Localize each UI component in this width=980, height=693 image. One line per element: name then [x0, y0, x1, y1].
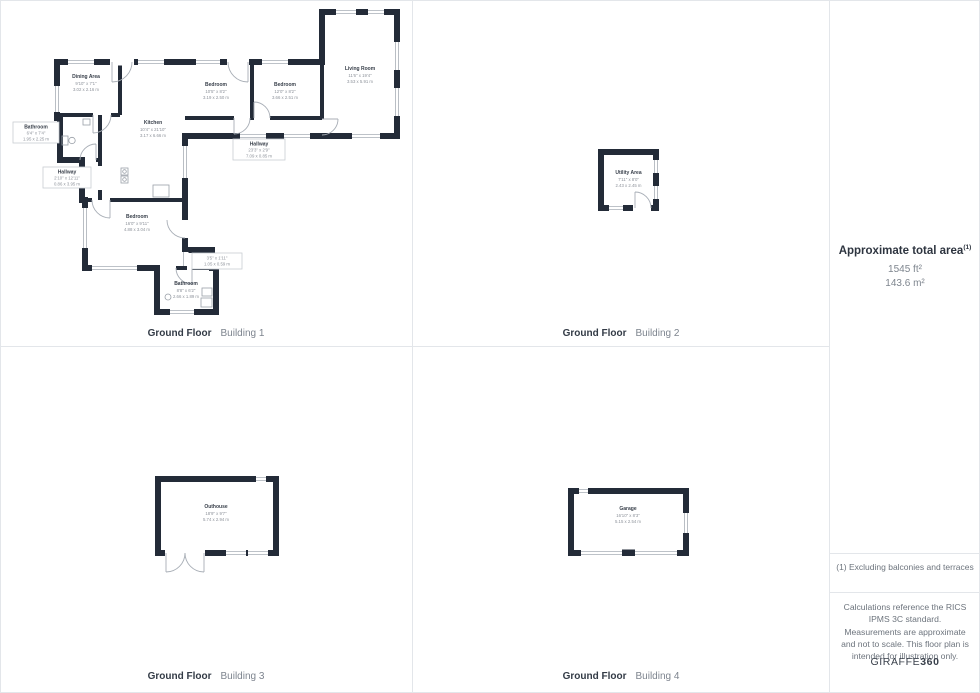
room-dim-metric: 2.66 x 1.89 m — [173, 294, 199, 299]
total-area-m: 143.6 m² — [830, 277, 980, 291]
floorplan-building-1: Dining Area 9'10" x 7'1" 3.02 x 2.16 m K… — [0, 0, 412, 346]
room-dim-imperial: 9'10" x 7'1" — [75, 81, 97, 86]
room-name: Kitchen — [144, 120, 162, 126]
doors — [165, 550, 205, 573]
room-name: Dining Area — [72, 74, 100, 80]
caption-building: Building 4 — [635, 671, 679, 682]
room-dim-imperial: 7'11" x 8'0" — [618, 177, 639, 182]
panel-building-1: Dining Area 9'10" x 7'1" 3.02 x 2.16 m K… — [0, 0, 412, 346]
summary-sidebar: Approximate total area(1) 1545 ft² 143.6… — [830, 0, 980, 693]
caption-building: Building 3 — [220, 671, 264, 682]
room-dim-metric: 2.43 x 2.45 m — [615, 183, 641, 188]
room-name: Bedroom — [274, 82, 297, 88]
doors — [581, 550, 677, 557]
room-label-hallway-left: Hallway 2'10" x 12'11" 0.86 x 3.95 m — [43, 167, 91, 188]
room-dim-imperial: 16'0" x 9'11" — [125, 221, 149, 226]
room-label-bedroom-1: Bedroom 10'5" x 8'2" 3.19 x 2.50 m — [203, 82, 229, 100]
room-dim-metric: 7.09 x 0.85 m — [246, 154, 272, 159]
room-name: Bedroom — [205, 82, 228, 88]
panel-building-2: Utility Area 7'11" x 8'0" 2.43 x 2.45 m … — [413, 0, 829, 346]
room-label-bathroom-left: Bathroom 6'4" x 7'4" 1.95 x 2.25 m — [13, 122, 59, 143]
room-name: Bathroom — [174, 281, 198, 287]
room-dim-metric: 1.05 x 0.59 m — [204, 262, 230, 267]
room-dim-metric: 4.88 x 3.04 m — [124, 227, 150, 232]
sidebar-divider-line — [829, 0, 830, 693]
room-dim-imperial: 18'9" x 9'7" — [205, 511, 227, 516]
room-name: Utility Area — [615, 170, 641, 176]
room-label-closet: 3'5" x 1'11" 1.05 x 0.59 m — [192, 253, 242, 269]
caption-building-3: Ground FloorBuilding 3 — [0, 671, 412, 682]
room-label-outhouse: Outhouse 18'9" x 9'7" 5.74 x 2.94 m — [203, 504, 229, 522]
disclaimer-text: Calculations reference the RICS IPMS 3C … — [840, 601, 970, 662]
row-divider — [0, 346, 829, 347]
room-dim-metric: 5.74 x 2.94 m — [203, 517, 229, 522]
caption-building-2: Ground FloorBuilding 2 — [413, 328, 829, 339]
sidebar-divider — [830, 592, 980, 593]
exterior-wall — [158, 479, 276, 553]
room-dim-metric: 3.17 x 6.66 m — [140, 133, 166, 138]
caption-floor: Ground Floor — [563, 671, 627, 682]
floorplan-building-3: Outhouse 18'9" x 9'7" 5.74 x 2.94 m — [0, 347, 412, 693]
room-dim-imperial: 23'3" x 2'9" — [248, 148, 270, 153]
room-label-dining-area: Dining Area 9'10" x 7'1" 3.02 x 2.16 m — [72, 74, 100, 92]
room-label-bedroom-2: Bedroom 12'0" x 8'2" 3.66 x 2.51 m — [272, 82, 298, 100]
room-dim-imperial: 3'5" x 1'11" — [207, 256, 228, 261]
room-dim-imperial: 16'10" x 8'3" — [616, 513, 640, 518]
caption-building: Building 1 — [220, 328, 264, 339]
footnote-text: (1) Excluding balconies and terraces — [830, 562, 980, 572]
room-name: Living Room — [345, 66, 376, 72]
total-area-ft: 1545 ft² — [830, 263, 980, 277]
room-dim-imperial: 8'8" x 6'2" — [177, 288, 196, 293]
room-label-utility-area: Utility Area 7'11" x 8'0" 2.43 x 2.45 m — [615, 170, 642, 188]
room-dim-imperial: 10'5" x 8'2" — [205, 89, 227, 94]
panel-building-4: Garage 16'10" x 8'3" 5.15 x 2.54 m Groun… — [413, 347, 829, 693]
room-dim-metric: 3.19 x 2.50 m — [203, 95, 229, 100]
total-area-block: Approximate total area(1) 1545 ft² 143.6… — [830, 244, 980, 291]
room-name: Outhouse — [204, 504, 228, 510]
room-label-bedroom-3: Bedroom 16'0" x 9'11" 4.88 x 3.04 m — [124, 214, 150, 232]
room-dim-metric: 3.53 x 5.91 m — [347, 79, 373, 84]
room-dim-metric: 3.66 x 2.51 m — [272, 95, 298, 100]
caption-building-1: Ground FloorBuilding 1 — [0, 328, 412, 339]
total-area-footnote-marker: (1) — [963, 244, 971, 251]
caption-building-4: Ground FloorBuilding 4 — [413, 671, 829, 682]
giraffe360-logo: GIRAFFE360 — [830, 656, 980, 668]
room-dim-imperial: 11'6" x 19'4" — [348, 73, 372, 78]
brand-regular: GIRAFFE — [870, 656, 920, 668]
caption-building: Building 2 — [635, 328, 679, 339]
floorplan-building-2: Utility Area 7'11" x 8'0" 2.43 x 2.45 m — [413, 0, 829, 346]
room-dim-imperial: 12'0" x 8'2" — [274, 89, 296, 94]
room-dim-metric: 0.86 x 3.95 m — [54, 182, 80, 187]
floorplan-building-4: Garage 16'10" x 8'3" 5.15 x 2.54 m — [413, 347, 829, 693]
room-dim-imperial: 10'4" x 21'10" — [140, 127, 166, 132]
room-name: Garage — [619, 506, 636, 512]
room-dim-imperial: 2'10" x 12'11" — [54, 176, 80, 181]
total-area-title: Approximate total area(1) — [830, 244, 980, 257]
room-label-living-room: Living Room 11'6" x 19'4" 3.53 x 5.91 m — [345, 66, 376, 84]
room-label-hallway-top: Hallway 23'3" x 2'9" 7.09 x 0.85 m — [233, 139, 285, 160]
caption-floor: Ground Floor — [563, 328, 627, 339]
room-dim-metric: 3.02 x 2.16 m — [73, 87, 99, 92]
total-area-title-text: Approximate total area — [839, 245, 964, 257]
sidebar-divider — [830, 553, 980, 554]
room-dim-imperial: 6'4" x 7'4" — [27, 131, 46, 136]
room-dim-metric: 1.95 x 2.25 m — [23, 137, 49, 142]
room-name: Bedroom — [126, 214, 149, 220]
floorplan-page: Dining Area 9'10" x 7'1" 3.02 x 2.16 m K… — [0, 0, 980, 693]
caption-floor: Ground Floor — [148, 671, 212, 682]
panel-building-3: Outhouse 18'9" x 9'7" 5.74 x 2.94 m Grou… — [0, 347, 412, 693]
brand-bold: 360 — [920, 656, 939, 668]
caption-floor: Ground Floor — [148, 328, 212, 339]
room-dim-metric: 5.15 x 2.54 m — [615, 519, 641, 524]
